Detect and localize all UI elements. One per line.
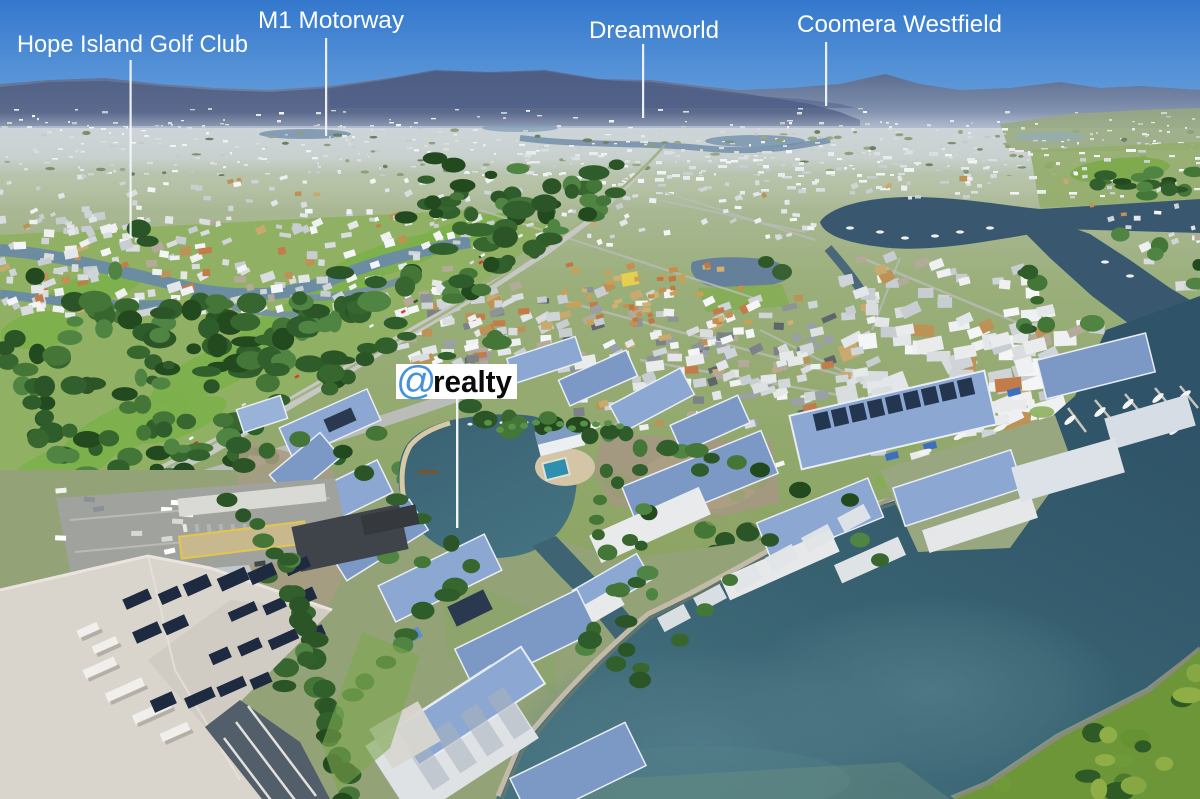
svg-text:@: @ xyxy=(396,359,437,403)
svg-text:Coomera Westfield: Coomera Westfield xyxy=(797,11,1002,38)
svg-text:realty: realty xyxy=(433,364,513,399)
svg-text:M1 Motorway: M1 Motorway xyxy=(258,7,404,34)
svg-text:Dreamworld: Dreamworld xyxy=(589,17,719,44)
svg-text:Hope Island Golf Club: Hope Island Golf Club xyxy=(17,31,248,58)
